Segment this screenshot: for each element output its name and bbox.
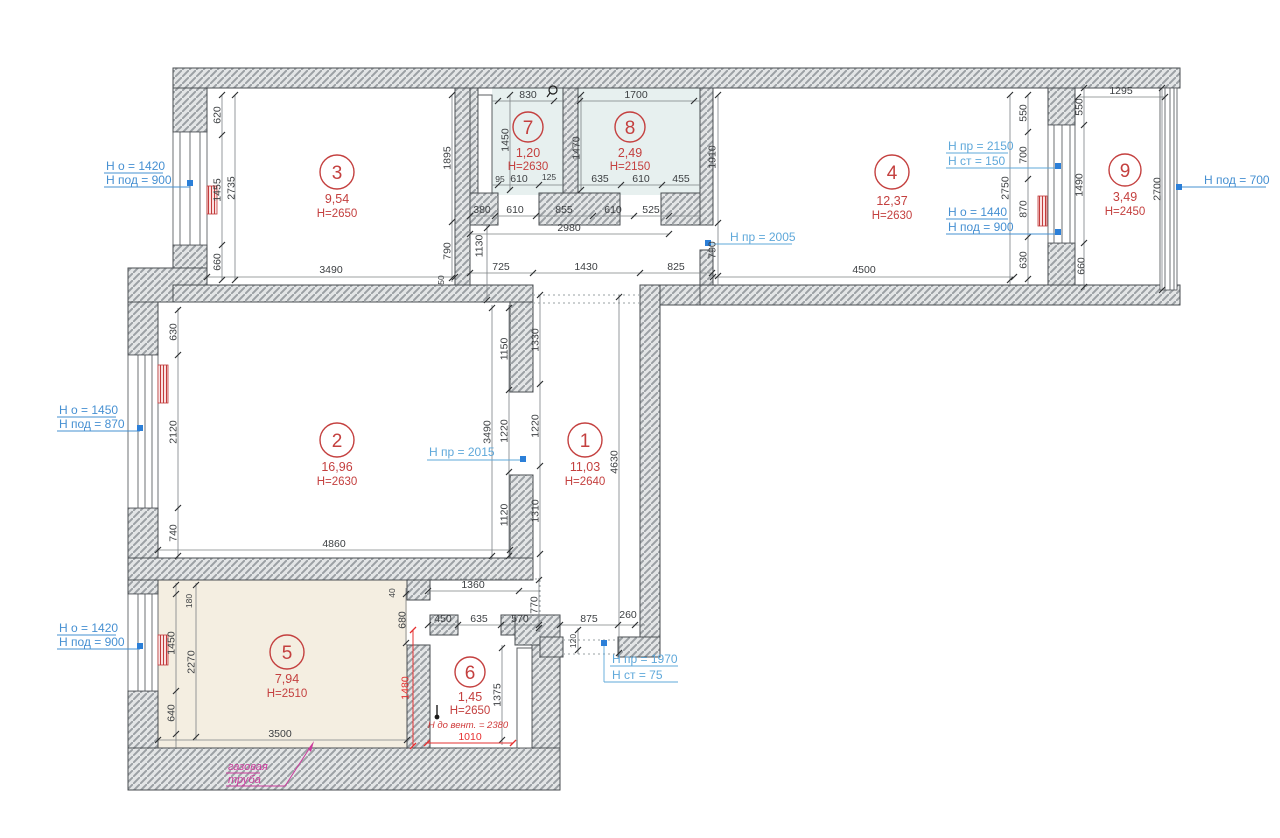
dim-label: 3490 — [319, 264, 343, 276]
radiator-icon — [158, 365, 168, 403]
dim-label: 1220 — [530, 414, 542, 438]
room-height: H=2650 — [317, 208, 358, 220]
wall — [660, 285, 700, 305]
room-9-label: 9 3,49 H=2450 — [1105, 154, 1146, 218]
dim-label: 1450 — [500, 128, 512, 152]
dim-label: 2270 — [186, 650, 198, 674]
annotation-text: Н ст = 150 — [948, 154, 1006, 168]
annotation-text: Н пр = 1970 — [612, 652, 678, 666]
wall — [640, 285, 660, 657]
wall — [1048, 88, 1075, 125]
dim-label: 790 — [442, 242, 454, 260]
room-area: 11,03 — [570, 460, 600, 474]
wall — [128, 580, 158, 594]
dim-label: 4630 — [609, 450, 621, 474]
dim-label: 50 — [436, 275, 446, 285]
dim-label: 725 — [492, 261, 510, 273]
wall — [700, 285, 1180, 305]
dim-label: 2750 — [1000, 176, 1012, 200]
annotation-text: Н пр = 2150 — [948, 139, 1014, 153]
dim-label: 2700 — [1152, 177, 1164, 201]
room-height: H=2650 — [450, 705, 491, 717]
annotation-text: Н о = 1450 — [59, 403, 118, 417]
wall — [532, 645, 560, 748]
room-area: 3,49 — [1113, 190, 1137, 204]
dim-label: 1910 — [707, 145, 719, 169]
wall — [455, 88, 470, 298]
dim-label: 640 — [166, 704, 178, 722]
room-number: 3 — [332, 163, 343, 184]
annotation-window9: Н под = 700 — [1176, 173, 1270, 190]
room-area: 1,45 — [458, 690, 482, 704]
room-area: 7,94 — [275, 672, 299, 686]
annotation-door4: Н пр = 2005 — [705, 230, 796, 246]
annotation-door2: Н пр = 2015 — [427, 445, 526, 462]
annotation-text: Н под = 700 — [1204, 173, 1270, 187]
room-area: 12,37 — [876, 194, 907, 208]
room-area: 1,20 — [516, 146, 540, 160]
annotation-text: Н под = 900 — [948, 220, 1014, 234]
dim-label: 610 — [510, 173, 528, 185]
dim-label: 1130 — [474, 235, 486, 258]
dim-label: 1150 — [499, 338, 511, 361]
room-height: H=2510 — [267, 688, 308, 700]
room-number: 2 — [332, 431, 343, 452]
dim-label: 875 — [580, 613, 598, 625]
room-2-label: 2 16,96 H=2630 — [317, 423, 358, 488]
window-room2 — [128, 355, 158, 508]
dim-label: 1470 — [571, 136, 583, 160]
dim-label: 2980 — [557, 222, 581, 234]
dim-label: 660 — [1076, 257, 1088, 275]
room-number: 8 — [625, 118, 636, 139]
dim-label: 180 — [184, 594, 194, 608]
room-height: H=2150 — [610, 161, 651, 173]
dim-label-red: 1480 — [400, 676, 412, 700]
room-number: 6 — [465, 663, 476, 684]
room-number: 9 — [1120, 161, 1131, 182]
dim-label: 1895 — [442, 146, 454, 170]
dim-label: 610 — [632, 173, 650, 185]
room-number: 5 — [282, 643, 293, 664]
dim-label: 125 — [542, 172, 556, 182]
leader-marker — [187, 180, 193, 186]
dim-label: 1220 — [499, 419, 511, 443]
dim-label: 550 — [1074, 98, 1086, 116]
gas-valve-icon — [435, 705, 440, 719]
wall — [128, 558, 533, 580]
vent-shaft — [517, 648, 532, 748]
room-area: 16,96 — [321, 460, 352, 474]
annotation-text: Н под = 900 — [106, 173, 172, 187]
dim-label: 1430 — [574, 261, 598, 273]
dim-label: 1310 — [530, 499, 542, 523]
room-3-label: 3 9,54 H=2650 — [317, 155, 358, 220]
room-1-label: 1 11,03 H=2640 — [565, 423, 606, 488]
dim-label: 1450 — [166, 631, 178, 655]
room-height: H=2450 — [1105, 206, 1146, 218]
dim-label: 1330 — [530, 328, 542, 352]
dim-label: 635 — [591, 173, 609, 185]
dim-label: 770 — [529, 596, 541, 614]
dim-label: 1490 — [1074, 173, 1086, 197]
dim-label: 1120 — [499, 504, 511, 527]
wall — [540, 637, 563, 657]
wall — [470, 88, 478, 195]
dim-label: 380 — [473, 204, 491, 216]
wall — [173, 285, 533, 302]
dim-label: 2120 — [168, 420, 180, 444]
leader-marker — [601, 640, 607, 646]
leader-marker — [137, 425, 143, 431]
room-4-label: 4 12,37 H=2630 — [872, 155, 913, 222]
annotation-text: Н о = 1440 — [948, 205, 1007, 219]
window-room5 — [128, 594, 158, 691]
dim-label: 570 — [511, 613, 529, 625]
leader-marker — [1055, 163, 1061, 169]
annotation-text: Н ст = 75 — [612, 668, 663, 682]
dim-label: 620 — [212, 106, 224, 124]
dim-label: 1360 — [461, 579, 485, 591]
dim-label: 1375 — [492, 683, 504, 707]
dim-label: 790 — [707, 241, 719, 259]
dim-label: 455 — [672, 173, 690, 185]
floor-plan-drawing: Н о = 1420 Н под = 900 Н о = 1450 Н под … — [0, 0, 1280, 838]
dim-label: 2735 — [226, 176, 238, 200]
radiator-icon — [1038, 196, 1047, 226]
dim-label: 700 — [1018, 146, 1030, 164]
dim-label: 630 — [1018, 251, 1030, 269]
wall — [173, 88, 207, 132]
annotation-text: Н о = 1420 — [106, 159, 165, 173]
dim-label: 855 — [555, 204, 573, 216]
dim-label: 525 — [642, 204, 660, 216]
dim-label: 610 — [604, 204, 622, 216]
dim-label: 870 — [1018, 200, 1030, 218]
dim-label: 630 — [168, 323, 180, 341]
dim-label: 740 — [168, 524, 180, 542]
annotation-text: Н под = 870 — [59, 417, 125, 431]
dim-label: 1295 — [1109, 85, 1133, 97]
wall — [407, 580, 430, 600]
dim-label: 610 — [506, 204, 524, 216]
annotation-balcony-door4: Н пр = 2150 Н ст = 150 — [946, 139, 1061, 169]
dim-label: 680 — [397, 611, 409, 629]
annotation-text: Н пр = 2005 — [730, 230, 796, 244]
dim-label: 825 — [667, 261, 685, 273]
dim-label: 1455 — [212, 178, 224, 202]
room-height: H=2630 — [872, 210, 913, 222]
annotation-text: труба — [228, 774, 261, 786]
leader-marker — [137, 643, 143, 649]
window-room4-balcony — [1048, 125, 1075, 243]
annotation-text: Н пр = 2015 — [429, 445, 495, 459]
dim-label: 1700 — [624, 89, 648, 101]
room-number: 7 — [523, 118, 534, 139]
annotation-text: Н под = 900 — [59, 635, 125, 649]
leader-marker — [1055, 229, 1061, 235]
floor-plan-canvas: Н о = 1420 Н под = 900 Н о = 1450 Н под … — [0, 0, 1280, 838]
leader-marker — [520, 456, 526, 462]
dim-label: 3490 — [482, 420, 494, 444]
dim-label: 3500 — [268, 728, 292, 740]
dim-label: 4860 — [322, 538, 346, 550]
wall — [128, 748, 560, 790]
dim-label: 660 — [212, 253, 224, 271]
vent-shaft — [478, 95, 492, 193]
room-number: 4 — [887, 163, 898, 184]
room-height: H=2630 — [317, 476, 358, 488]
dim-label: 120 — [568, 634, 578, 648]
room-height: H=2640 — [565, 476, 606, 488]
room-area: 9,54 — [325, 192, 349, 206]
room-area: 2,49 — [618, 146, 642, 160]
annotation-text: Н о = 1420 — [59, 621, 118, 635]
dim-label: 635 — [470, 613, 488, 625]
vent-height-note: Н до вент. = 2380 — [428, 720, 509, 731]
leader-marker — [1176, 184, 1182, 190]
dim-label: 830 — [519, 89, 537, 101]
dim-label: 4500 — [852, 264, 876, 276]
wall — [128, 302, 158, 355]
wall — [173, 68, 1180, 88]
room-number: 1 — [580, 431, 591, 452]
dim-label: 95 — [495, 174, 505, 184]
dim-label: 450 — [434, 613, 452, 625]
dim-label: 550 — [1018, 104, 1030, 122]
dim-label: 40 — [387, 588, 397, 598]
annotation-text: газовая — [228, 761, 268, 773]
wall — [128, 691, 158, 748]
dim-label-red: 1010 — [458, 731, 482, 743]
dim-label: 260 — [619, 609, 637, 621]
